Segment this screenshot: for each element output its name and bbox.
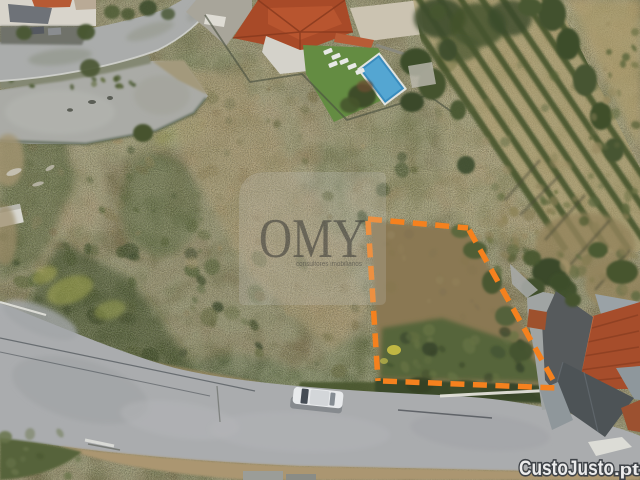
svg-text:consultores imobiliarios: consultores imobiliarios	[296, 261, 362, 268]
svg-text:.pt: .pt	[614, 460, 639, 479]
svg-text:CustoJusto: CustoJusto	[519, 457, 614, 480]
